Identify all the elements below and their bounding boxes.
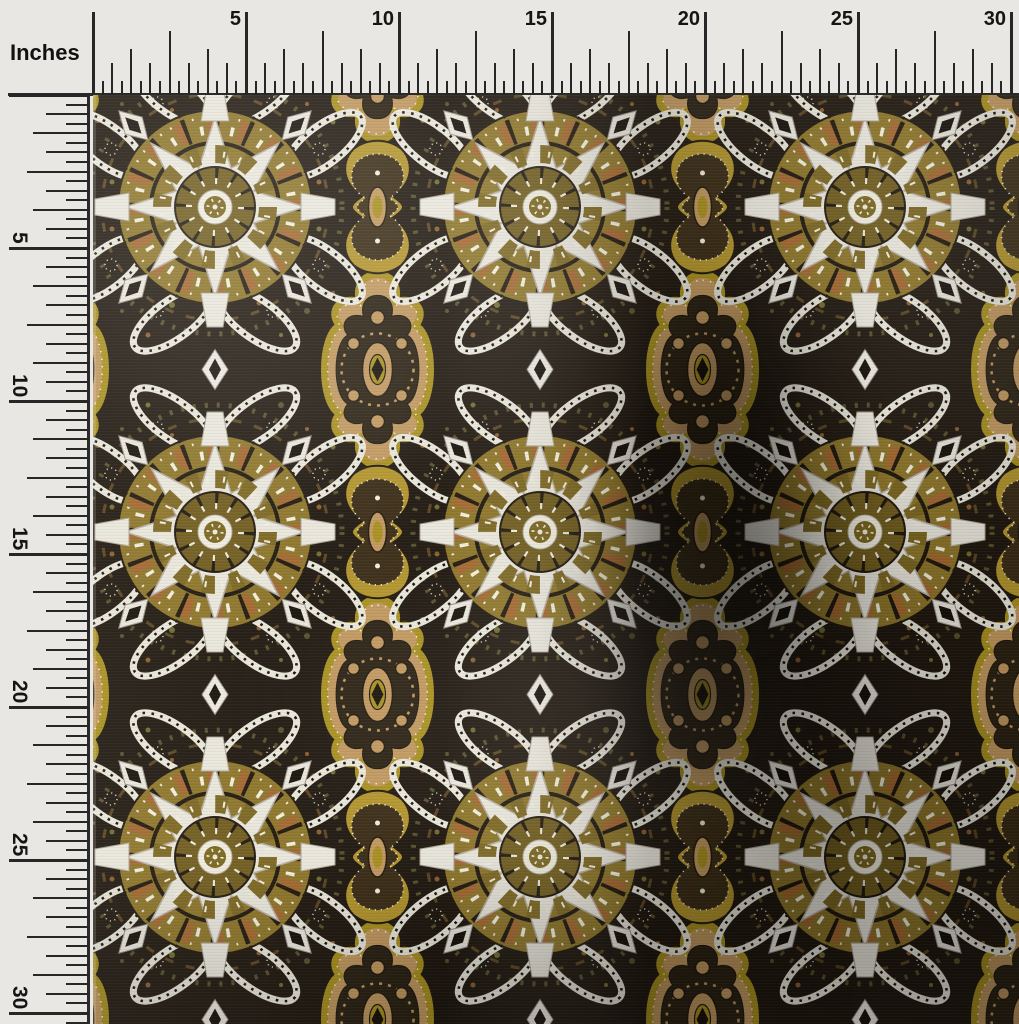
top-ruler-number: 15	[525, 9, 547, 29]
ruler-tick	[226, 63, 228, 95]
ruler-tick	[66, 1002, 89, 1004]
ruler-tick	[675, 81, 677, 95]
ruler-tick	[46, 343, 89, 345]
ruler-tick	[235, 81, 237, 95]
ruler-tick	[66, 620, 89, 622]
ruler-tick	[46, 496, 89, 498]
ruler-tick	[27, 783, 89, 785]
ruler-tick	[9, 553, 89, 556]
ruler-tick	[46, 266, 89, 268]
left-ruler-number: 15	[9, 527, 30, 550]
ruler-tick	[27, 477, 89, 479]
ruler-tick	[33, 821, 89, 823]
ruler-tick	[494, 63, 496, 95]
ruler-tick	[274, 81, 276, 95]
ruler-tick	[666, 49, 668, 95]
ruler-tick	[66, 237, 89, 239]
ruler-tick	[66, 467, 89, 469]
ruler-tick	[628, 31, 630, 95]
ruler-tick	[876, 63, 878, 95]
ruler-tick	[207, 49, 209, 95]
ruler-tick	[245, 12, 248, 95]
ruler-tick	[140, 81, 142, 95]
ruler-tick	[66, 792, 89, 794]
ruler-tick	[360, 49, 362, 95]
ruler-tick	[484, 81, 486, 95]
ruler-tick	[828, 81, 830, 95]
ruler-tick	[66, 486, 89, 488]
ruler-tick	[66, 199, 89, 201]
ruler-tick	[66, 218, 89, 220]
ruler-tick	[9, 1012, 89, 1015]
ruler-tick	[33, 438, 89, 440]
ruler-tick	[953, 63, 955, 95]
ruler-tick	[522, 81, 524, 95]
ruler-tick	[9, 706, 89, 709]
ruler-tick	[66, 563, 89, 565]
ruler-tick	[66, 849, 89, 851]
vertical-light-gradient	[93, 95, 1019, 1024]
ruler-tick	[704, 12, 707, 95]
ruler-tick	[66, 658, 89, 660]
ruler-tick	[637, 81, 639, 95]
ruler-tick	[178, 81, 180, 95]
ruler-tick	[475, 31, 477, 95]
ruler-tick	[46, 190, 89, 192]
ruler-tick	[46, 113, 89, 115]
ruler-tick	[417, 63, 419, 95]
ruler-tick	[130, 49, 132, 95]
ruler-tick	[46, 381, 89, 383]
ruler-tick	[9, 94, 89, 97]
ruler-tick	[656, 81, 658, 95]
ruler-tick	[924, 81, 926, 95]
ruler-tick	[341, 63, 343, 95]
left-ruler-baseline	[87, 95, 90, 1024]
fabric-listing-photo: Inches 51015202530 51015202530	[0, 0, 1019, 1024]
left-ruler-number: 20	[9, 680, 30, 703]
ruler-tick	[27, 324, 89, 326]
ruler-tick	[27, 936, 89, 938]
ruler-tick	[27, 630, 89, 632]
ruler-tick	[312, 81, 314, 95]
ruler-tick	[66, 524, 89, 526]
ruler-tick	[761, 63, 763, 95]
ruler-tick	[981, 81, 983, 95]
ruler-tick	[66, 811, 89, 813]
ruler-tick	[121, 81, 123, 95]
ruler-tick	[847, 81, 849, 95]
ruler-tick	[169, 31, 171, 95]
left-ruler-number: 30	[9, 986, 30, 1009]
ruler-tick	[46, 304, 89, 306]
ruler-tick	[1010, 12, 1013, 95]
ruler-tick	[66, 123, 89, 125]
left-ruler-number: 5	[9, 232, 30, 244]
ruler-tick	[66, 276, 89, 278]
ruler-tick	[33, 668, 89, 670]
ruler-tick	[408, 81, 410, 95]
ruler-tick	[551, 12, 554, 95]
ruler-tick	[618, 81, 620, 95]
ruler-tick	[66, 295, 89, 297]
ruler-tick	[33, 974, 89, 976]
ruler-tick	[46, 802, 89, 804]
ruler-tick	[293, 81, 295, 95]
ruler-tick	[867, 81, 869, 95]
ruler-tick	[188, 63, 190, 95]
left-ruler-number: 10	[9, 374, 30, 397]
ruler-tick	[33, 515, 89, 517]
ruler-tick	[379, 63, 381, 95]
ruler-tick	[66, 601, 89, 603]
ruler-tick	[398, 12, 401, 95]
ruler-tick	[111, 63, 113, 95]
ruler-tick	[92, 12, 95, 95]
ruler-tick	[46, 534, 89, 536]
ruler-tick	[66, 696, 89, 698]
top-ruler-number: 5	[230, 9, 241, 29]
ruler-tick	[46, 572, 89, 574]
ruler-tick	[66, 352, 89, 354]
ruler-tick	[503, 81, 505, 95]
ruler-tick	[33, 132, 89, 134]
ruler-tick	[369, 81, 371, 95]
ruler-tick	[46, 725, 89, 727]
ruler-tick	[66, 543, 89, 545]
ruler-tick	[66, 754, 89, 756]
ruler-tick	[819, 49, 821, 95]
ruler-tick	[66, 983, 89, 985]
ruler-tick	[972, 49, 974, 95]
ruler-tick	[589, 49, 591, 95]
ruler-tick	[800, 63, 802, 95]
ruler-tick	[723, 63, 725, 95]
ruler-tick	[33, 897, 89, 899]
ruler-tick	[46, 916, 89, 918]
ruler-tick	[771, 81, 773, 95]
ruler-tick	[580, 81, 582, 95]
ruler-tick	[570, 63, 572, 95]
ruler-tick	[66, 142, 89, 144]
ruler-tick	[809, 81, 811, 95]
ruler-tick	[46, 955, 89, 957]
ruler-tick	[27, 171, 89, 173]
ruler-tick	[149, 63, 151, 95]
ruler-tick	[66, 964, 89, 966]
ruler-tick	[66, 888, 89, 890]
ruler-tick	[33, 744, 89, 746]
ruler-tick	[66, 869, 89, 871]
ruler-tick	[685, 63, 687, 95]
ruler-tick	[66, 371, 89, 373]
ruler-tick	[46, 840, 89, 842]
ruler-tick	[46, 878, 89, 880]
ruler-tick	[694, 81, 696, 95]
ruler-tick	[66, 830, 89, 832]
ruler-tick	[943, 81, 945, 95]
ruler-tick	[46, 228, 89, 230]
ruler-tick	[66, 448, 89, 450]
ruler-tick	[33, 209, 89, 211]
ruler-tick	[46, 151, 89, 153]
ruler-tick	[66, 945, 89, 947]
ruler-tick	[66, 257, 89, 259]
ruler-tick	[66, 314, 89, 316]
ruler-tick	[914, 63, 916, 95]
ruler-tick	[255, 81, 257, 95]
ruler-tick	[33, 285, 89, 287]
ruler-tick	[934, 31, 936, 95]
ruler-tick	[46, 610, 89, 612]
ruler-tick	[66, 410, 89, 412]
ruler-tick	[838, 63, 840, 95]
ruler-tick	[46, 419, 89, 421]
top-ruler-number: 30	[984, 9, 1006, 29]
ruler-tick	[66, 505, 89, 507]
ruler-tick	[66, 180, 89, 182]
ruler-tick	[66, 639, 89, 641]
ruler-tick	[66, 1022, 89, 1024]
ruler-tick	[66, 773, 89, 775]
ruler-tick	[513, 49, 515, 95]
ruler-tick	[66, 161, 89, 163]
ruler-tick	[647, 63, 649, 95]
ruler-tick	[427, 81, 429, 95]
ruler-tick	[66, 429, 89, 431]
ruler-tick	[599, 81, 601, 95]
ruler-tick	[46, 457, 89, 459]
ruler-tick	[264, 63, 266, 95]
ruler-tick	[302, 63, 304, 95]
ruler-tick	[66, 907, 89, 909]
fabric-photo	[93, 95, 1019, 1024]
ruler-tick	[9, 400, 89, 403]
ruler-tick	[66, 104, 89, 106]
ruler-tick	[331, 81, 333, 95]
ruler-tick	[216, 81, 218, 95]
ruler-tick	[532, 63, 534, 95]
ruler-tick	[561, 81, 563, 95]
ruler-tick	[66, 926, 89, 928]
ruler-tick	[388, 81, 390, 95]
ruler-tick	[46, 649, 89, 651]
ruler-tick	[733, 81, 735, 95]
fabric-left-edge	[93, 95, 96, 1024]
ruler-tick	[159, 81, 161, 95]
top-ruler-number: 25	[831, 9, 853, 29]
ruler-tick	[905, 81, 907, 95]
ruler-tick	[9, 859, 89, 862]
ruler-tick	[46, 687, 89, 689]
ruler-tick	[455, 63, 457, 95]
ruler-tick	[66, 677, 89, 679]
ruler-tick	[66, 333, 89, 335]
fabric-pattern-svg	[93, 95, 1019, 1024]
ruler-tick	[66, 716, 89, 718]
ruler-tick	[46, 763, 89, 765]
ruler-tick	[790, 81, 792, 95]
top-ruler-number: 10	[372, 9, 394, 29]
ruler-tick	[66, 582, 89, 584]
ruler-tick	[46, 993, 89, 995]
ruler-tick	[857, 12, 860, 95]
ruler-tick	[714, 81, 716, 95]
ruler-tick	[1000, 81, 1002, 95]
ruler-tick	[283, 49, 285, 95]
ruler-tick	[66, 390, 89, 392]
ruler-tick	[465, 81, 467, 95]
ruler-tick	[446, 81, 448, 95]
ruler-tick	[752, 81, 754, 95]
ruler-tick	[895, 49, 897, 95]
ruler-tick	[33, 591, 89, 593]
ruler-tick	[886, 81, 888, 95]
ruler-tick	[781, 31, 783, 95]
ruler-tick	[541, 81, 543, 95]
ruler-tick	[322, 31, 324, 95]
left-ruler-number: 25	[9, 833, 30, 856]
ruler-tick	[350, 81, 352, 95]
ruler-tick	[66, 735, 89, 737]
ruler-tick	[9, 247, 89, 250]
ruler-tick	[991, 63, 993, 95]
ruler-tick	[197, 81, 199, 95]
inches-unit-label: Inches	[10, 40, 80, 66]
top-ruler-number: 20	[678, 9, 700, 29]
ruler-tick	[33, 362, 89, 364]
ruler-tick	[742, 49, 744, 95]
ruler-tick	[608, 63, 610, 95]
ruler-tick	[436, 49, 438, 95]
ruler-tick	[102, 81, 104, 95]
ruler-tick	[962, 81, 964, 95]
